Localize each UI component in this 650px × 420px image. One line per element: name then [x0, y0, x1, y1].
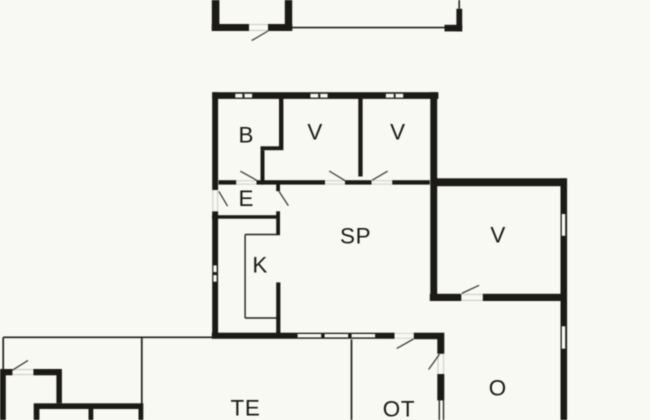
svg-text:O: O	[489, 376, 506, 401]
svg-text:B: B	[239, 122, 254, 147]
svg-text:V: V	[390, 119, 405, 144]
svg-text:TE: TE	[230, 395, 260, 420]
svg-text:V: V	[490, 222, 505, 247]
svg-text:K: K	[252, 253, 267, 278]
svg-text:E: E	[239, 186, 254, 211]
svg-text:V: V	[307, 119, 322, 144]
svg-text:SP: SP	[340, 223, 371, 248]
svg-text:OT: OT	[383, 396, 416, 420]
